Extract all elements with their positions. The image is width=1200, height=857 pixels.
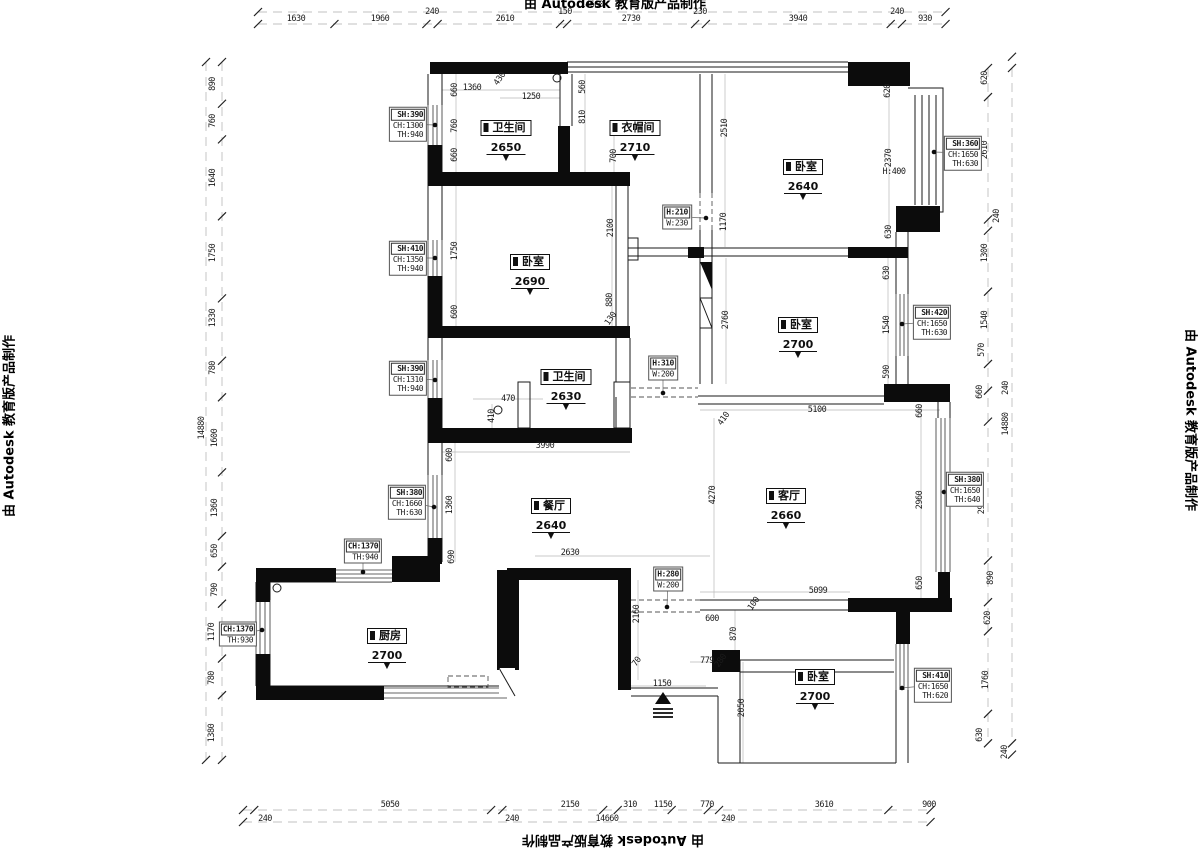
dim-label: 690 <box>447 550 457 564</box>
dim-label: 5100 <box>808 405 826 415</box>
spec-line: W:200 <box>652 369 674 379</box>
spec-line: CH:1660 <box>392 498 422 508</box>
chain-dimension-label: 240 <box>721 814 735 824</box>
chain-dimension-label: 240 <box>258 814 272 824</box>
spec-line: SH:380 <box>948 474 982 486</box>
spec-line: TH:630 <box>392 508 422 518</box>
chain-dimension-label: 1300 <box>980 244 990 262</box>
spec-line: SH:390 <box>391 109 425 121</box>
chain-dimension-label: 2610 <box>496 14 514 24</box>
chain-dimension-label: 660 <box>975 385 985 399</box>
spec-line: SH:410 <box>916 670 950 682</box>
chain-dimension-label: 620 <box>983 611 993 625</box>
room-name: 客厅 <box>766 488 806 504</box>
chain-dimension-label: 1150 <box>654 800 672 810</box>
level-triangle-icon: ▼ <box>795 704 835 711</box>
dim-label: 410 <box>716 410 732 427</box>
dim-label: 560 <box>578 80 588 94</box>
level-triangle-icon: ▼ <box>610 155 661 162</box>
dim-label: 660 <box>450 148 460 162</box>
window-spec-label: SH:390CH:1310TH:940 <box>389 361 427 396</box>
room-label: 厨房2700▼ <box>367 625 407 670</box>
chain-dimension-label: 620 <box>980 71 990 85</box>
label-layer: 由 Autodesk 教育版产品制作 由 Autodesk 教育版产品制作 由 … <box>0 0 1200 857</box>
level-triangle-icon: ▼ <box>367 663 407 670</box>
room-name: 厨房 <box>367 628 407 644</box>
dim-label: 600 <box>705 614 719 624</box>
chain-dimension-label: 240 <box>1001 381 1011 395</box>
spec-line: CH:1650 <box>917 318 947 328</box>
spec-line: CH:1300 <box>393 120 423 130</box>
chain-dimension-label: 2730 <box>622 14 640 24</box>
dim-label: 2960 <box>915 491 925 509</box>
spec-line: CH:1650 <box>948 149 978 159</box>
room-label: 卫生间2650▼ <box>481 117 532 162</box>
chain-dimension-label: 240 <box>425 7 439 17</box>
dim-label: 2370 <box>884 149 894 167</box>
spec-line: TH:940 <box>393 264 423 274</box>
spec-line: SH:390 <box>391 363 425 375</box>
autodesk-credit-right: 由 Autodesk 教育版产品制作 <box>1183 329 1200 511</box>
room-label: 客厅2660▼ <box>766 485 806 530</box>
spec-line: TH:940 <box>393 130 423 140</box>
spec-line: W:200 <box>657 580 679 590</box>
dim-label: 630 <box>882 266 892 280</box>
spec-line: TH:940 <box>393 384 423 394</box>
window-spec-label: SH:390CH:1300TH:940 <box>389 107 427 142</box>
spec-line: CH:1650 <box>950 485 980 495</box>
window-spec-label: SH:380CH:1650TH:640 <box>946 472 984 507</box>
floor-plan-canvas: 由 Autodesk 教育版产品制作 由 Autodesk 教育版产品制作 由 … <box>0 0 1200 857</box>
room-label: 卧室2700▼ <box>795 666 835 711</box>
level-triangle-icon: ▼ <box>783 194 823 201</box>
room-name: 卧室 <box>795 669 835 685</box>
dim-label: 810 <box>578 110 588 124</box>
chain-dimension-label: 900 <box>922 800 936 810</box>
dim-label: 2630 <box>561 548 579 558</box>
spec-line: CH:1310 <box>393 374 423 384</box>
chain-dimension-label: 890 <box>986 571 996 585</box>
level-triangle-icon: ▼ <box>531 533 571 540</box>
dim-label: 280 <box>713 652 729 669</box>
dim-label: 70 <box>630 655 643 668</box>
chain-dimension-label: 14660 <box>595 814 618 824</box>
spec-line: H:310 <box>650 358 676 370</box>
chain-dimension-label: 790 <box>210 583 220 597</box>
dim-label: 1540 <box>882 316 892 334</box>
dim-label: 1360 <box>463 83 481 93</box>
chain-dimension-label: 1760 <box>981 671 991 689</box>
spec-line: H:280 <box>655 569 681 581</box>
dim-label: 880 <box>605 293 615 307</box>
dim-label: 870 <box>729 627 739 641</box>
spec-line: TH:630 <box>948 159 978 169</box>
chain-dimension-label: 310 <box>623 800 637 810</box>
window-spec-label: H:280W:200 <box>653 567 683 592</box>
autodesk-credit-bottom: 由 Autodesk 教育版产品制作 <box>522 832 704 851</box>
chain-dimension-label: 1540 <box>980 311 990 329</box>
chain-dimension-label: 240 <box>1000 745 1010 759</box>
chain-dimension-label: 1750 <box>208 244 218 262</box>
window-spec-label: CH:1370TH:930 <box>219 622 257 647</box>
spec-line: TH:940 <box>348 552 378 562</box>
dim-label: 2050 <box>737 699 747 717</box>
spec-line: CH:1350 <box>393 254 423 264</box>
dim-label: 3990 <box>536 441 554 451</box>
dim-label: 130 <box>603 310 619 327</box>
spec-line: CH:1370 <box>221 624 255 636</box>
dim-label: 650 <box>915 576 925 590</box>
level-triangle-icon: ▼ <box>481 155 532 162</box>
room-label: 卧室2700▼ <box>778 314 818 359</box>
chain-dimension-label: 770 <box>700 800 714 810</box>
spec-line: SH:410 <box>391 243 425 255</box>
chain-dimension-label: 570 <box>977 343 987 357</box>
spec-line: SH:380 <box>390 487 424 499</box>
chain-dimension-label: 650 <box>210 544 220 558</box>
chain-dimension-label: 14880 <box>1001 412 1011 435</box>
room-name: 卧室 <box>783 159 823 175</box>
spec-line: SH:420 <box>915 307 949 319</box>
chain-dimension-label: 630 <box>975 728 985 742</box>
autodesk-credit-left: 由 Autodesk 教育版产品制作 <box>0 335 18 517</box>
chain-dimension-label: 240 <box>992 209 1002 223</box>
level-triangle-icon: ▼ <box>778 352 818 359</box>
chain-dimension-label: 240 <box>505 814 519 824</box>
chain-dimension-label: 240 <box>890 7 904 17</box>
dim-label: 2510 <box>720 119 730 137</box>
chain-dimension-label: 1630 <box>287 14 305 24</box>
room-name: 衣帽间 <box>610 120 661 136</box>
window-spec-label: SH:420CH:1650TH:630 <box>913 305 951 340</box>
chain-dimension-label: 1960 <box>371 14 389 24</box>
dim-label: 1150 <box>653 679 671 689</box>
chain-dimension-label: 890 <box>208 77 218 91</box>
dim-label: 590 <box>882 365 892 379</box>
level-triangle-icon: ▼ <box>510 289 550 296</box>
dim-label: 430 <box>492 70 508 87</box>
window-spec-label: SH:360CH:1650TH:630 <box>944 136 982 171</box>
chain-dimension-label: 1600 <box>210 429 220 447</box>
dim-label: 4270 <box>708 486 718 504</box>
window-spec-label: SH:410CH:1350TH:940 <box>389 241 427 276</box>
spec-line: SH:360 <box>946 138 980 150</box>
dim-label: 660 <box>450 83 460 97</box>
chain-dimension-label: 1380 <box>207 724 217 742</box>
window-spec-label: SH:410CH:1650TH:620 <box>914 668 952 703</box>
dim-label: 100 <box>746 595 762 612</box>
dim-label: H:400 <box>882 167 905 177</box>
room-label: 卫生间2630▼ <box>541 366 592 411</box>
dim-label: 2100 <box>606 219 616 237</box>
room-name: 卧室 <box>510 254 550 270</box>
chain-dimension-label: 1330 <box>208 309 218 327</box>
chain-dimension-label: 3610 <box>815 800 833 810</box>
dim-label: 630 <box>884 225 894 239</box>
chain-dimension-label: 780 <box>207 671 217 685</box>
chain-dimension-label: 1170 <box>207 623 217 641</box>
chain-dimension-label: 5050 <box>381 800 399 810</box>
room-name: 卧室 <box>778 317 818 333</box>
dim-label: 2760 <box>721 311 731 329</box>
dim-label: 1250 <box>522 92 540 102</box>
chain-dimension-label: 780 <box>208 361 218 375</box>
dim-label: 1750 <box>450 242 460 260</box>
level-triangle-icon: ▼ <box>766 523 806 530</box>
chain-dimension-label: 14880 <box>197 416 207 439</box>
room-name: 卫生间 <box>541 369 592 385</box>
spec-line: TH:640 <box>950 495 980 505</box>
chain-dimension-label: 930 <box>918 14 932 24</box>
room-name: 餐厅 <box>531 498 571 514</box>
dim-label: 660 <box>915 404 925 418</box>
spec-line: H:210 <box>664 207 690 219</box>
room-label: 卧室2690▼ <box>510 251 550 296</box>
dim-label: 470 <box>501 394 515 404</box>
spec-line: W:230 <box>666 218 688 228</box>
chain-dimension-label: 3940 <box>789 14 807 24</box>
dim-label: 600 <box>445 448 455 462</box>
dim-label: 760 <box>450 119 460 133</box>
dim-label: 1360 <box>445 496 455 514</box>
autodesk-credit-top: 由 Autodesk 教育版产品制作 <box>524 0 706 12</box>
window-spec-label: SH:380CH:1660TH:630 <box>388 485 426 520</box>
spec-line: CH:1650 <box>918 681 948 691</box>
spec-line: CH:1370 <box>346 541 380 553</box>
room-name: 卫生间 <box>481 120 532 136</box>
window-spec-label: H:310W:200 <box>648 356 678 381</box>
chain-dimension-label: 760 <box>208 114 218 128</box>
spec-line: TH:630 <box>917 328 947 338</box>
room-label: 餐厅2640▼ <box>531 495 571 540</box>
dim-label: 2160 <box>632 605 642 623</box>
window-spec-label: CH:1370TH:940 <box>344 539 382 564</box>
chain-dimension-label: 2150 <box>561 800 579 810</box>
spec-line: TH:930 <box>223 635 253 645</box>
room-label: 卧室2640▼ <box>783 156 823 201</box>
room-label: 衣帽间2710▼ <box>610 117 661 162</box>
dim-label: 600 <box>450 305 460 319</box>
dim-label: 779 <box>700 656 714 666</box>
chain-dimension-label: 1360 <box>210 499 220 517</box>
dim-label: 620 <box>883 84 893 98</box>
chain-dimension-label: 1640 <box>208 169 218 187</box>
spec-line: TH:620 <box>918 691 948 701</box>
window-spec-label: H:210W:230 <box>662 205 692 230</box>
dim-label: 410 <box>487 409 497 423</box>
dim-label: 1170 <box>719 213 729 231</box>
level-triangle-icon: ▼ <box>541 404 592 411</box>
dim-label: 5099 <box>809 586 827 596</box>
